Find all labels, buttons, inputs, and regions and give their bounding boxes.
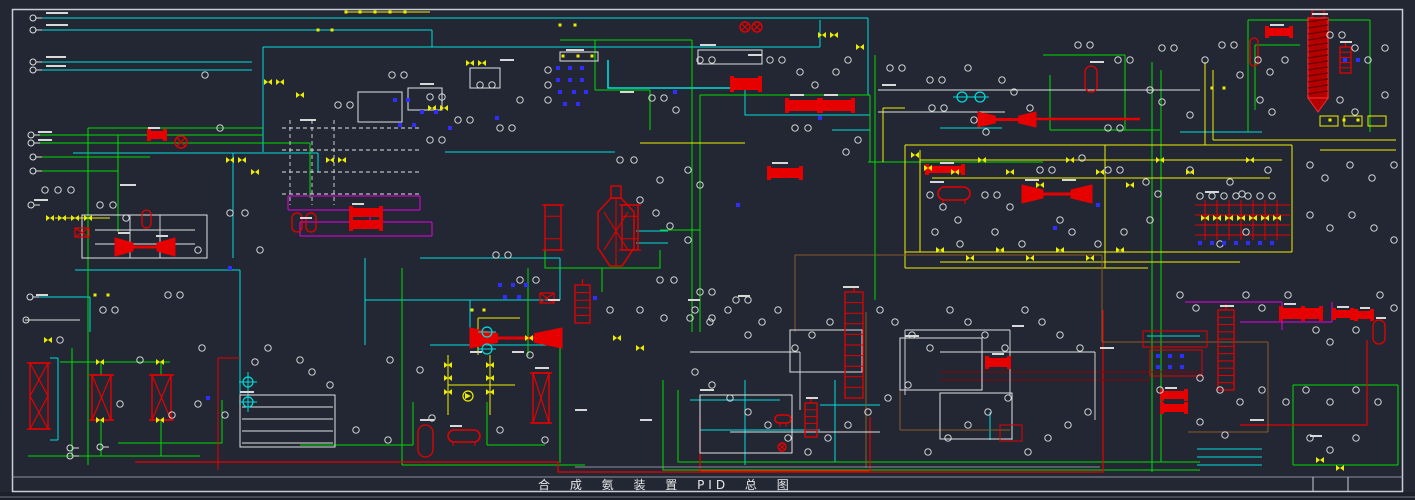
cad-pid-drawing-window: 合 成 氨 装 置 PID 总 图 xyxy=(0,0,1415,500)
blue-instrument-dot xyxy=(206,396,210,400)
blue-instrument-dot xyxy=(420,110,424,114)
yellow-dot xyxy=(107,294,110,297)
yellow-dot xyxy=(1211,87,1214,90)
exchanger-cap xyxy=(349,218,353,231)
blue-instrument-dot xyxy=(593,296,597,300)
yellow-dot xyxy=(331,29,334,32)
blue-instrument-dot xyxy=(556,66,560,70)
blue-instrument-dot xyxy=(556,78,560,82)
exchanger-cap xyxy=(163,129,167,141)
yellow-dot xyxy=(1357,119,1360,122)
blue-instrument-dot xyxy=(572,90,576,94)
exchanger-cap xyxy=(379,206,383,219)
exchanger-cap xyxy=(1160,402,1164,414)
blue-instrument-dot xyxy=(412,123,416,127)
exchanger-cap xyxy=(851,98,855,113)
yellow-dot xyxy=(1223,87,1226,90)
blue-instrument-dot xyxy=(498,283,502,287)
blue-instrument-dot xyxy=(1210,241,1214,245)
drawing-background xyxy=(0,0,1415,500)
drawing-title: 合 成 氨 装 置 PID 总 图 xyxy=(538,476,793,493)
blue-instrument-dot xyxy=(1168,354,1172,358)
equipment-exchanger xyxy=(1304,308,1320,319)
blue-instrument-dot xyxy=(568,66,572,70)
equipment-exchanger xyxy=(352,208,380,217)
exchanger-cap xyxy=(785,98,789,113)
exchanger-cap xyxy=(758,76,762,92)
pid-canvas[interactable] xyxy=(0,0,1415,500)
blue-instrument-dot xyxy=(584,90,588,94)
equipment-exchanger xyxy=(788,100,818,111)
exchanger-cap xyxy=(349,206,353,219)
blue-instrument-dot xyxy=(434,110,438,114)
equipment-exchanger xyxy=(352,220,380,229)
equipment-exchanger xyxy=(1163,404,1185,412)
equipment-exchanger xyxy=(1163,391,1185,399)
blue-instrument-dot xyxy=(406,98,410,102)
blue-instrument-dot xyxy=(1168,365,1172,369)
exchanger-cap xyxy=(1350,308,1354,320)
equipment-exchanger xyxy=(1335,310,1351,318)
yellow-dot xyxy=(317,29,320,32)
equipment-exchanger xyxy=(1357,311,1371,319)
exchanger-cap xyxy=(1332,308,1336,320)
yellow-dot xyxy=(591,55,594,58)
yellow-dot xyxy=(577,55,580,58)
exchanger-cap xyxy=(379,218,383,231)
equipment-exchanger xyxy=(770,168,800,178)
equipment-exchanger xyxy=(988,358,1008,367)
yellow-dot xyxy=(471,309,474,312)
yellow-dot xyxy=(559,24,562,27)
blue-instrument-dot xyxy=(1096,203,1100,207)
window-bottom-strip xyxy=(0,492,1415,500)
exchanger-cap xyxy=(799,166,803,180)
blue-instrument-dot xyxy=(580,66,584,70)
blue-instrument-dot xyxy=(398,123,402,127)
blue-instrument-dot xyxy=(1156,365,1160,369)
exchanger-cap xyxy=(147,129,151,141)
blue-instrument-dot xyxy=(1258,241,1262,245)
blue-instrument-dot xyxy=(1343,58,1347,62)
equipment-exchanger xyxy=(733,78,759,90)
exchanger-cap xyxy=(1354,309,1358,321)
yellow-dot xyxy=(483,309,486,312)
blue-instrument-dot xyxy=(1198,241,1202,245)
exchanger-cap xyxy=(1301,306,1305,321)
blue-instrument-dot xyxy=(1180,365,1184,369)
blue-instrument-dot xyxy=(736,203,740,207)
exchanger-cap xyxy=(1184,389,1188,401)
blue-instrument-dot xyxy=(511,283,515,287)
blue-instrument-dot xyxy=(228,266,232,270)
yellow-dot xyxy=(562,55,565,58)
exchanger-cap xyxy=(1289,26,1293,38)
yellow-dot xyxy=(1343,119,1346,122)
equipment-exchanger xyxy=(1282,308,1302,319)
yellow-dot xyxy=(374,11,377,14)
exchanger-cap xyxy=(1007,356,1011,369)
exchanger-cap xyxy=(1279,306,1283,321)
yellow-dot xyxy=(345,11,348,14)
blue-instrument-dot xyxy=(1356,58,1360,62)
yellow-dot xyxy=(574,24,577,27)
blue-instrument-dot xyxy=(1156,354,1160,358)
blue-instrument-dot xyxy=(495,116,499,120)
exchanger-cap xyxy=(730,76,734,92)
blue-instrument-dot xyxy=(448,126,452,130)
exchanger-cap xyxy=(961,164,965,175)
blue-instrument-dot xyxy=(1053,226,1057,230)
blue-instrument-dot xyxy=(576,102,580,106)
blue-instrument-dot xyxy=(393,98,397,102)
blue-instrument-dot xyxy=(1234,241,1238,245)
blue-instrument-dot xyxy=(818,116,822,120)
exchanger-cap xyxy=(1265,26,1269,38)
equipment-exchanger xyxy=(1268,28,1290,36)
yellow-dot xyxy=(359,11,362,14)
exchanger-cap xyxy=(985,356,989,369)
blue-instrument-dot xyxy=(580,78,584,82)
blue-instrument-dot xyxy=(524,283,528,287)
yellow-dot xyxy=(94,294,97,297)
yellow-dot xyxy=(389,11,392,14)
blue-instrument-dot xyxy=(568,78,572,82)
blue-instrument-dot xyxy=(1222,241,1226,245)
exchanger-cap xyxy=(1184,402,1188,414)
yellow-dot xyxy=(404,11,407,14)
blue-instrument-dot xyxy=(563,102,567,106)
blue-instrument-dot xyxy=(1270,241,1274,245)
blue-instrument-dot xyxy=(1246,241,1250,245)
blue-instrument-dot xyxy=(503,295,507,299)
yellow-dot xyxy=(1329,119,1332,122)
exchanger-cap xyxy=(767,166,771,180)
equipment-exchanger xyxy=(822,100,852,111)
blue-instrument-dot xyxy=(558,90,562,94)
blue-instrument-dot xyxy=(1180,354,1184,358)
exchanger-cap xyxy=(1319,306,1323,321)
exchanger-cap xyxy=(1370,309,1374,321)
exchanger-cap xyxy=(819,98,823,113)
blue-instrument-dot xyxy=(673,90,677,94)
blue-instrument-dot xyxy=(517,295,521,299)
equipment-exchanger xyxy=(150,131,164,139)
